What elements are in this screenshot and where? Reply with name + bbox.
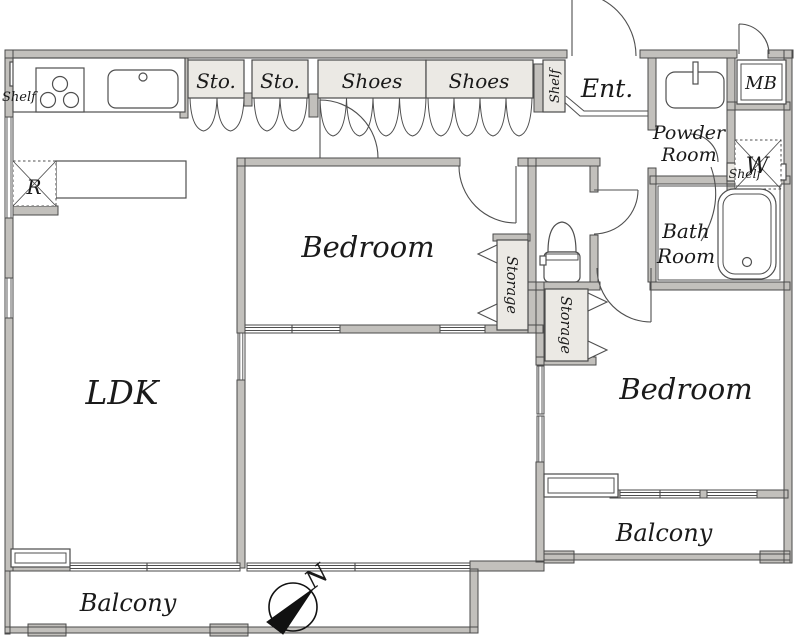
sto1-label: Sto.: [196, 69, 236, 93]
bedroom2-label: Bedroom: [618, 372, 752, 406]
bath-room-label-line2: Room: [656, 244, 715, 268]
sink-faucet-icon: [139, 73, 147, 81]
washer-label: W: [746, 154, 771, 179]
toilet-tank: [544, 252, 580, 282]
bathtub-drain-icon: [743, 258, 752, 267]
balcony-left-label: Balcony: [79, 589, 177, 617]
washbasin-faucet-icon: [693, 62, 698, 84]
refrigerator-label: R: [25, 175, 41, 199]
shoes1-label: Shoes: [342, 69, 403, 93]
shelf-entrance-label: Shelf: [548, 67, 563, 103]
bath-room-label-line1: Bath: [661, 219, 710, 243]
burner-icon: [41, 93, 56, 108]
toilet-handle-icon: [540, 256, 546, 265]
shelf-kitchen-label: Shelf: [2, 90, 38, 105]
bedroom2-alcove-step: [544, 474, 618, 497]
burner-icon: [64, 93, 79, 108]
bedroom1-label: Bedroom: [300, 230, 434, 264]
shoes2-label: Shoes: [449, 69, 510, 93]
storage2-label: Storage: [557, 296, 573, 354]
storage1-label: Storage: [503, 256, 519, 314]
meter-box-label: MB: [744, 73, 777, 94]
entrance-label: Ent.: [580, 74, 633, 103]
floor-plan: N LDK Bedroom Bedroom Balcony Balcony En…: [0, 0, 800, 637]
ldk-step: [11, 549, 70, 567]
burner-icon: [53, 77, 68, 92]
kitchen-island-counter: [56, 161, 186, 198]
powder-room-label-line2: Room: [660, 144, 716, 166]
ldk-label: LDK: [84, 373, 160, 412]
balcony-right-label: Balcony: [615, 519, 713, 547]
sto2-label: Sto.: [260, 69, 300, 93]
powder-room-label-line1: Powder: [652, 122, 727, 144]
